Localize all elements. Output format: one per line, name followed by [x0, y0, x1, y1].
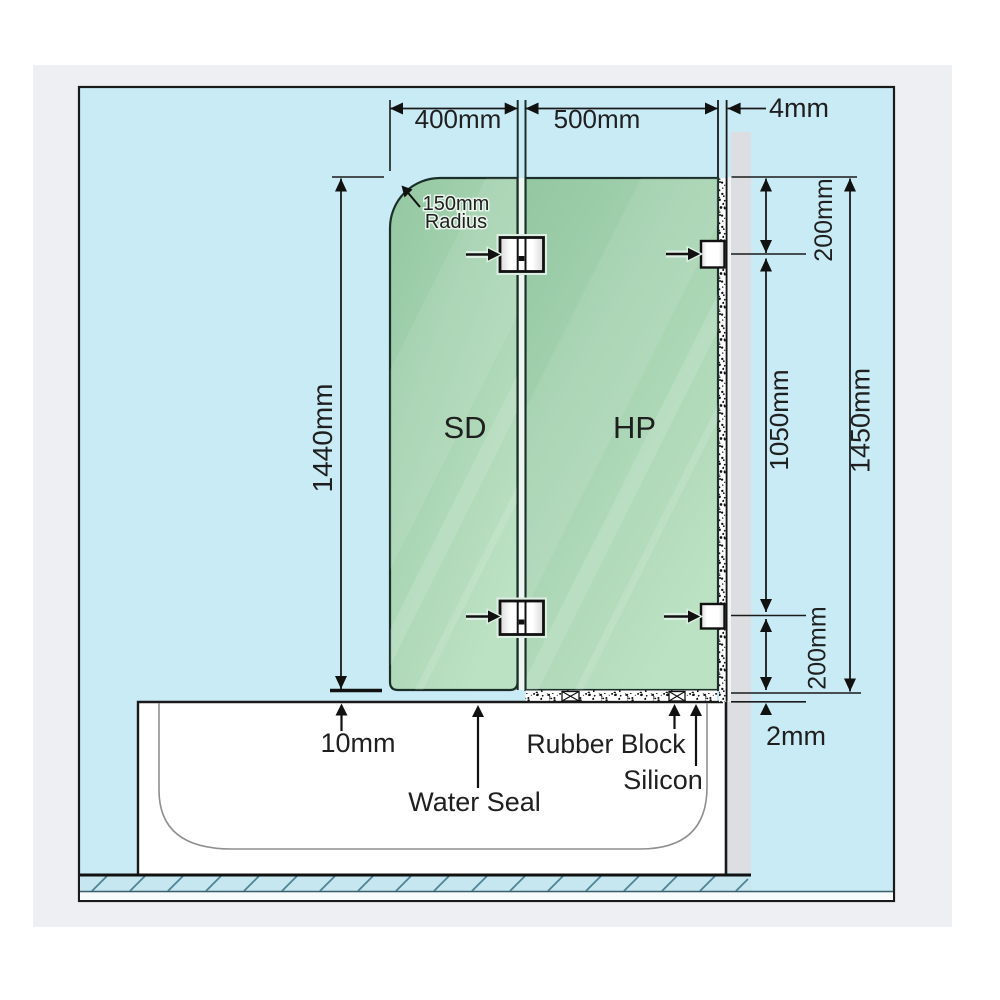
svg-text:1440mm: 1440mm	[307, 384, 338, 493]
svg-text:HP: HP	[613, 410, 656, 445]
svg-text:Rubber Block: Rubber Block	[526, 729, 686, 759]
svg-text:2mm: 2mm	[766, 721, 826, 751]
svg-text:500mm: 500mm	[554, 104, 641, 134]
svg-text:200mm: 200mm	[804, 606, 832, 689]
svg-text:1450mm: 1450mm	[846, 368, 876, 473]
svg-text:1050mm: 1050mm	[764, 369, 794, 470]
svg-text:Silicon: Silicon	[623, 765, 703, 795]
svg-text:Radius: Radius	[425, 211, 487, 233]
svg-text:200mm: 200mm	[810, 178, 838, 261]
svg-text:Water Seal: Water Seal	[408, 787, 541, 817]
svg-text:SD: SD	[443, 410, 486, 445]
svg-text:10mm: 10mm	[320, 728, 395, 758]
svg-text:400mm: 400mm	[415, 104, 502, 134]
svg-text:4mm: 4mm	[769, 93, 829, 123]
